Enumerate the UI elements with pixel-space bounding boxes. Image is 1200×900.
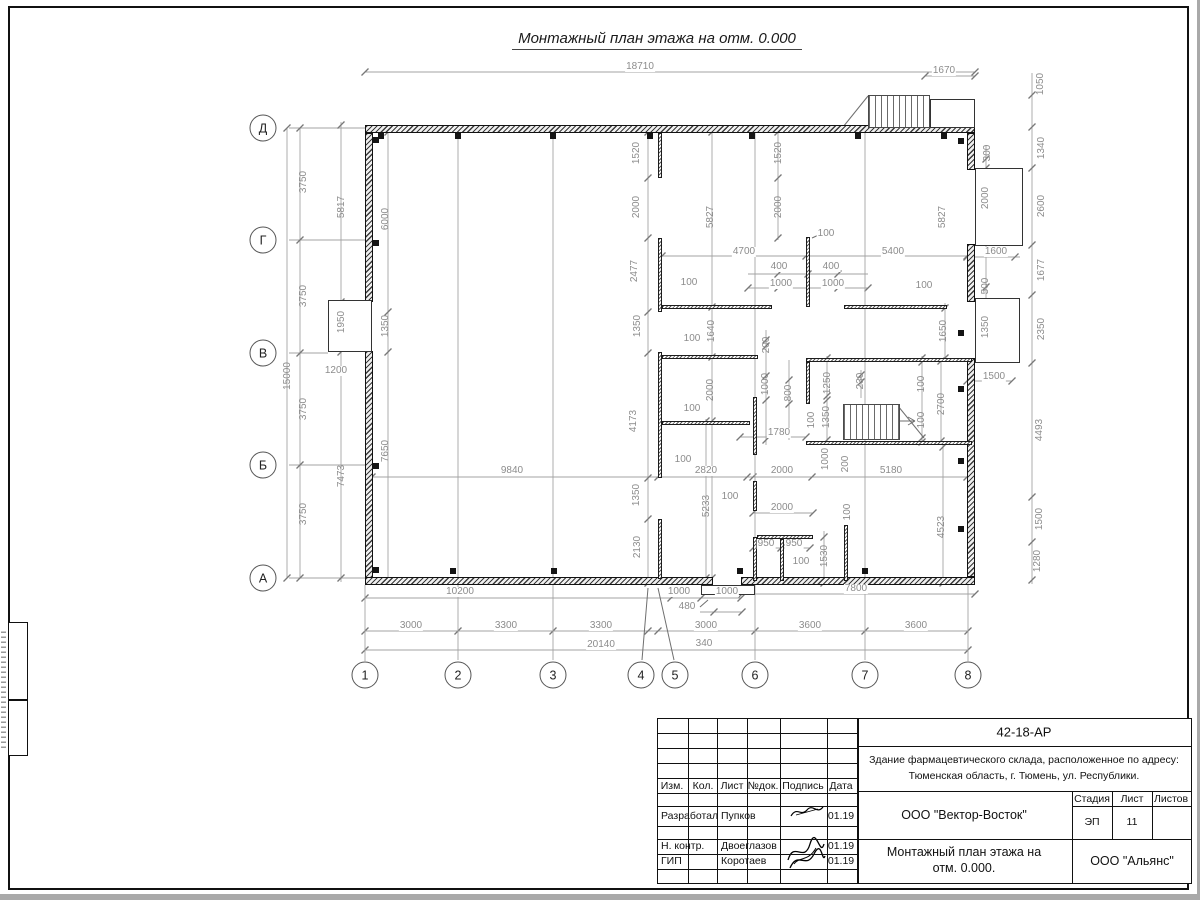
interior-wall: [844, 305, 947, 309]
sheet-label: Лист: [1121, 793, 1144, 805]
col-header-kol: Кол.: [693, 780, 714, 792]
exterior-wall: [967, 133, 975, 170]
window-marker: [373, 240, 379, 246]
dimension-label: 3300: [589, 621, 613, 631]
title-block-line: [780, 718, 781, 884]
doc-number: 42-18-АР: [997, 725, 1052, 740]
dimension-label: 500: [981, 277, 991, 296]
exterior-wall: [967, 244, 975, 302]
interior-wall: [658, 519, 662, 579]
col-header-izm: Изм.: [661, 780, 684, 792]
grid-bubble-row-А: А: [250, 565, 277, 592]
dimension-label: 100: [817, 229, 836, 239]
dimension-label: 1250: [823, 371, 833, 395]
sheet-title-line2: отм. 0.000.: [933, 861, 996, 875]
dimension-label: 1600: [984, 247, 1008, 257]
project-description-line2: Тюменская область, г. Тюмень, ул. Респуб…: [909, 770, 1140, 782]
window-marker: [455, 133, 461, 139]
title-block-line: [857, 839, 1192, 840]
window-marker: [647, 133, 653, 139]
project-description-line1: Здание фармацевтического склада, располо…: [869, 754, 1179, 766]
dimension-label: 7800: [844, 584, 868, 594]
title-block-line: [1112, 791, 1113, 839]
grid-bubble-col-1: 1: [352, 662, 379, 689]
dimension-label: 1650: [939, 319, 949, 343]
dimension-label: 2350: [1037, 317, 1047, 341]
dimension-label: 7473: [337, 464, 347, 488]
window-marker: [550, 133, 556, 139]
design-organization: ООО "Вектор-Восток": [901, 808, 1027, 822]
dimension-label: 1000: [821, 279, 845, 289]
title-block-line: [688, 718, 689, 884]
dimension-label: 400: [770, 262, 789, 272]
dimension-label: 5827: [706, 205, 716, 229]
window-marker: [958, 458, 964, 464]
interior-wall: [662, 355, 758, 359]
dimension-label: 1350: [822, 405, 832, 429]
interior-wall: [662, 305, 772, 309]
dimension-label: 3000: [694, 621, 718, 631]
dimension-label: 4173: [629, 409, 639, 433]
dimension-label: 2000: [770, 503, 794, 513]
dimension-label: 5400: [881, 247, 905, 257]
window-marker: [958, 138, 964, 144]
dimension-label: 4523: [937, 515, 947, 539]
title-block-line: [747, 718, 748, 884]
dimension-label: 1670: [932, 66, 956, 76]
date-normcontrol: 01.19: [828, 840, 854, 852]
grid-bubble-col-8: 8: [955, 662, 982, 689]
dimension-label: 480: [678, 602, 697, 612]
dimension-label: 300: [983, 144, 993, 163]
dimension-label: 3750: [299, 284, 309, 308]
window-marker: [862, 568, 868, 574]
name-developer: Пупков: [721, 810, 756, 822]
role-gip: ГИП: [661, 855, 682, 867]
dimension-label: 2000: [770, 466, 794, 476]
dimension-label: 100: [721, 492, 740, 502]
dimension-label: 400: [822, 262, 841, 272]
dimension-label: 100: [674, 455, 693, 465]
interior-wall: [806, 358, 972, 362]
dimension-label: 1520: [632, 141, 642, 165]
dimension-label: 5180: [879, 466, 903, 476]
dimension-label: 4700: [732, 247, 756, 257]
exterior-wall: [365, 351, 373, 585]
dimension-label: 100: [807, 411, 817, 430]
dimension-label: 800: [784, 384, 794, 403]
stage-label: Стадия: [1074, 793, 1110, 805]
dimension-label: 100: [915, 281, 934, 291]
dimension-label: 4493: [1035, 418, 1045, 442]
col-header-ndok: №док.: [748, 780, 779, 792]
grid-bubble-row-В: В: [250, 340, 277, 367]
dimension-label: 1000: [715, 587, 739, 597]
dimension-label: 1520: [774, 141, 784, 165]
dimension-label: 3750: [299, 502, 309, 526]
dimension-label: 1350: [632, 483, 642, 507]
window-marker: [855, 133, 861, 139]
window-marker: [749, 133, 755, 139]
sheet-title-line1: Монтажный план этажа на: [887, 845, 1041, 859]
dimension-label: 100: [917, 375, 927, 394]
dimension-label: 1000: [761, 372, 771, 396]
dimension-label: 20140: [586, 640, 616, 650]
interior-wall: [658, 238, 662, 312]
dimension-label: 100: [680, 278, 699, 288]
grid-bubble-row-Д: Д: [250, 115, 277, 142]
dimension-label: 1530: [820, 544, 830, 568]
dimension-label: 5817: [337, 195, 347, 219]
col-header-podpis: Подпись: [782, 780, 824, 792]
dimension-label: 100: [683, 404, 702, 414]
window-marker: [551, 568, 557, 574]
interior-wall: [753, 481, 757, 511]
dimension-label: 230: [856, 372, 866, 391]
date-gip: 01.19: [828, 855, 854, 867]
grid-bubble-col-6: 6: [742, 662, 769, 689]
dimension-label: 1200: [324, 366, 348, 376]
sheets-label: Листов: [1154, 793, 1188, 805]
window-marker: [958, 386, 964, 392]
interior-wall: [662, 421, 750, 425]
dimension-label: 3000: [399, 621, 423, 631]
interior-wall: [753, 397, 757, 455]
grid-bubble-col-4: 4: [628, 662, 655, 689]
window-marker: [373, 137, 379, 143]
dimension-label: 3600: [798, 621, 822, 631]
dimension-label: 2600: [1037, 194, 1047, 218]
drawing-sheet: Монтажный план этажа на отм. 0.000 18710…: [0, 0, 1197, 894]
dimension-label: 10200: [445, 587, 475, 597]
dimension-label: 2000: [981, 186, 991, 210]
name-gip: Коротаев: [721, 855, 766, 867]
customer-organization: ООО "Альянс": [1090, 854, 1174, 868]
dimension-label: 9840: [500, 466, 524, 476]
dimension-label: 1950: [337, 310, 347, 334]
dimension-label: 3600: [904, 621, 928, 631]
dimension-label: 2477: [630, 259, 640, 283]
name-normcontrol: Двоеглазов: [721, 840, 777, 852]
stair-internal: [843, 404, 900, 440]
dimension-label: 1000: [667, 587, 691, 597]
title-block-line: [857, 718, 859, 884]
dimension-label: 5233: [702, 494, 712, 518]
interior-wall: [658, 133, 662, 178]
porch-outline: [930, 99, 975, 128]
grid-bubble-col-5: 5: [662, 662, 689, 689]
dimension-label: 2130: [633, 535, 643, 559]
col-header-list: Лист: [721, 780, 744, 792]
dimension-label: 1640: [707, 319, 717, 343]
dimension-label: 2000: [706, 378, 716, 402]
dimension-label: 100: [683, 334, 702, 344]
dimension-label: 1340: [1037, 136, 1047, 160]
dimension-label: 3750: [299, 397, 309, 421]
title-block-line: [717, 718, 718, 884]
dimension-label: 1000: [769, 279, 793, 289]
title-block-line: [827, 718, 828, 884]
dimension-label: 7650: [381, 439, 391, 463]
dimension-label: 3750: [299, 170, 309, 194]
dimension-label: 100: [843, 503, 853, 522]
dimension-label: 15000: [283, 361, 293, 391]
grid-bubble-col-3: 3: [540, 662, 567, 689]
dimension-label: 1350: [381, 314, 391, 338]
dimension-label: 950: [785, 539, 804, 549]
dimension-label: 1780: [767, 428, 791, 438]
dimension-label: 100: [917, 411, 927, 430]
sheet-number: 11: [1127, 816, 1138, 828]
interior-wall: [806, 441, 972, 445]
dimension-label: 2700: [937, 392, 947, 416]
dimension-label: 200: [841, 455, 851, 474]
dimension-label: 100: [792, 557, 811, 567]
exterior-wall: [365, 133, 373, 302]
dimension-label: 5827: [938, 205, 948, 229]
grid-bubble-col-7: 7: [852, 662, 879, 689]
stair-external: [868, 95, 930, 128]
grid-bubble-col-2: 2: [445, 662, 472, 689]
stage-value: ЭП: [1084, 816, 1099, 828]
dimension-label: 1677: [1037, 258, 1047, 282]
interior-wall: [844, 525, 848, 581]
grid-bubble-row-Б: Б: [250, 452, 277, 479]
porch-outline: [328, 300, 372, 352]
title-block-line: [857, 791, 1192, 792]
dimension-label: 2000: [632, 195, 642, 219]
dimension-label: 6000: [381, 207, 391, 231]
window-marker: [737, 568, 743, 574]
title-block-line: [1152, 791, 1153, 839]
window-marker: [373, 463, 379, 469]
exterior-wall: [967, 358, 975, 577]
col-header-data: Дата: [829, 780, 852, 792]
date-developer: 01.19: [828, 810, 854, 822]
dimension-label: 2000: [774, 195, 784, 219]
window-marker: [450, 568, 456, 574]
window-marker: [373, 567, 379, 573]
grid-bubble-row-Г: Г: [250, 227, 277, 254]
title-block-line: [1072, 806, 1192, 807]
role-developer: Разработал: [661, 810, 718, 822]
dimension-label: 1050: [1036, 72, 1046, 96]
title-block-line: [1072, 791, 1073, 884]
window-marker: [958, 330, 964, 336]
interior-wall: [780, 539, 784, 581]
role-normcontrol: Н. контр.: [661, 840, 704, 852]
dimension-label: 200: [762, 336, 772, 355]
dimension-label: 1500: [982, 372, 1006, 382]
interior-wall: [806, 237, 810, 307]
window-marker: [941, 133, 947, 139]
dimension-label: 1350: [633, 314, 643, 338]
dimension-label: 1500: [1035, 507, 1045, 531]
dimension-label: 1280: [1033, 549, 1043, 573]
dimension-label: 1000: [821, 447, 831, 471]
dimension-label: 340: [695, 639, 714, 649]
title-block-line: [857, 746, 1192, 747]
dimension-label: 18710: [625, 62, 655, 72]
dimension-label: 1350: [981, 315, 991, 339]
dimension-label: 2820: [694, 466, 718, 476]
dimension-label: 950: [757, 539, 776, 549]
interior-wall: [658, 352, 662, 478]
interior-wall: [806, 362, 810, 404]
window-marker: [958, 526, 964, 532]
dimension-label: 3300: [494, 621, 518, 631]
